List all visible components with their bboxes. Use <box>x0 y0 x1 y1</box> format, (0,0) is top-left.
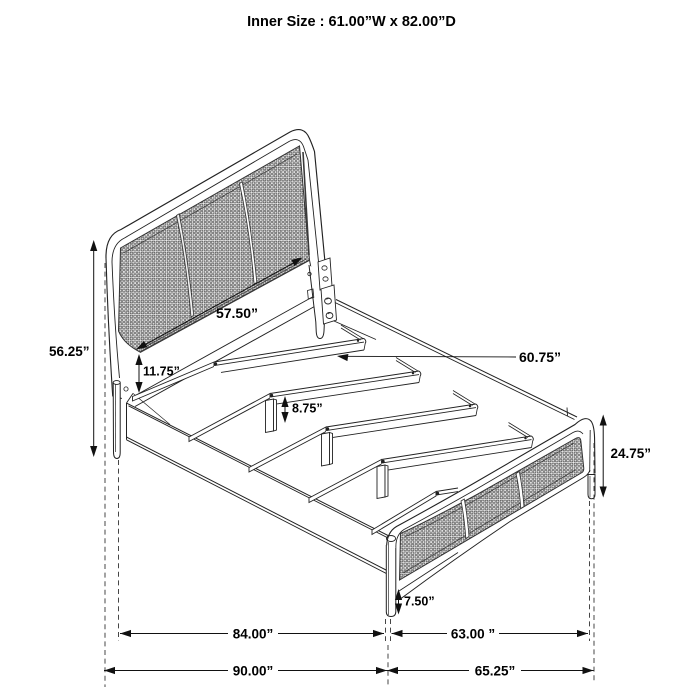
svg-text:63.00 ”: 63.00 ” <box>451 627 495 642</box>
svg-text:84.00”: 84.00” <box>233 627 274 642</box>
svg-text:Inner Size : 61.00”W x 82.00”D: Inner Size : 61.00”W x 82.00”D <box>247 14 456 30</box>
svg-text:7.50”: 7.50” <box>404 595 435 609</box>
svg-text:11.75”: 11.75” <box>143 365 180 379</box>
svg-text:24.75”: 24.75” <box>611 446 652 461</box>
svg-text:60.75”: 60.75” <box>519 349 561 365</box>
svg-text:8.75”: 8.75” <box>292 402 323 416</box>
svg-text:57.50”: 57.50” <box>216 305 258 321</box>
svg-text:90.00”: 90.00” <box>233 664 274 679</box>
svg-text:56.25”: 56.25” <box>49 344 90 359</box>
svg-text:65.25”: 65.25” <box>475 664 516 679</box>
